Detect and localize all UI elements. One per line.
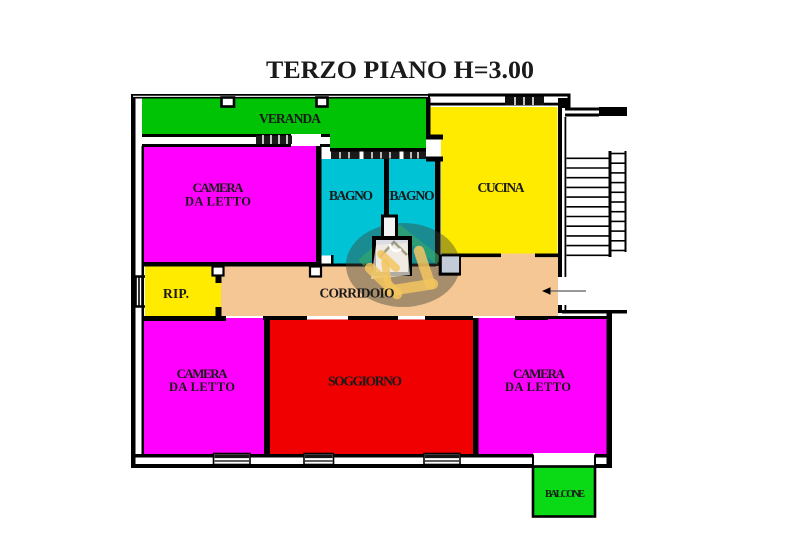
svg-text:VERANDA: VERANDA — [259, 111, 321, 126]
svg-text:DA LETTO: DA LETTO — [185, 195, 251, 209]
svg-text:SOGGIORNO: SOGGIORNO — [328, 374, 402, 389]
svg-text:BALCONE: BALCONE — [545, 489, 585, 500]
svg-text:CAMERA: CAMERA — [193, 180, 245, 195]
svg-text:DA LETTO: DA LETTO — [505, 380, 571, 394]
svg-text:TERZO PIANO H=3.00: TERZO PIANO H=3.00 — [266, 55, 534, 84]
svg-text:BAGNO: BAGNO — [329, 188, 373, 203]
svg-text:CORRIDOIO: CORRIDOIO — [320, 286, 395, 301]
svg-text:CAMERA: CAMERA — [513, 366, 566, 381]
svg-text:DA LETTO: DA LETTO — [169, 380, 235, 394]
svg-text:RIP.: RIP. — [163, 286, 189, 301]
svg-text:CAMERA: CAMERA — [177, 366, 229, 381]
svg-text:CUCINA: CUCINA — [478, 180, 525, 195]
svg-text:BAGNO: BAGNO — [390, 188, 435, 203]
